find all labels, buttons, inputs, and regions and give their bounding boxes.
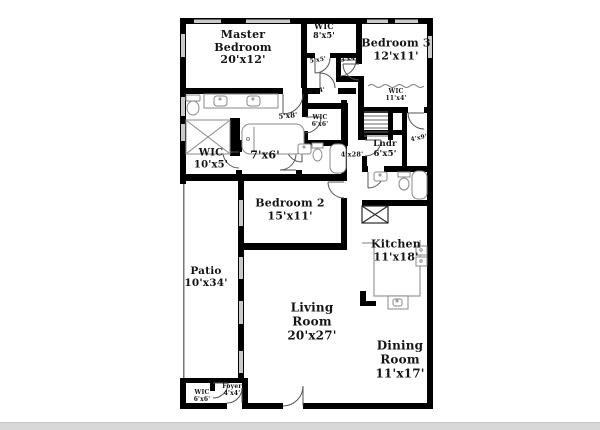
room-name: Master Bedroom bbox=[211, 29, 275, 54]
room-label-living-room: Living Room 20'x27' bbox=[284, 301, 340, 342]
toilet-icon bbox=[312, 143, 323, 161]
room-name: WIC bbox=[188, 148, 234, 160]
stairs-icon bbox=[364, 112, 388, 136]
island-sink-icon bbox=[388, 296, 408, 309]
double-vanity-icon bbox=[204, 94, 278, 108]
room-label-wic-6x6-middle: WIC 6'x6' bbox=[305, 115, 335, 129]
room-dims: 6'x6' bbox=[187, 397, 217, 404]
bathtub-icon bbox=[412, 171, 427, 199]
room-dims: 11'x18' bbox=[366, 251, 426, 264]
room-dims: 20'x12' bbox=[211, 54, 275, 67]
room-dims: 6'x5' bbox=[365, 150, 405, 160]
pantry-icon bbox=[362, 206, 388, 223]
third-bath-fixtures bbox=[374, 171, 427, 199]
room-name: Patio bbox=[176, 265, 236, 277]
sink-icon bbox=[298, 144, 311, 154]
room-dims: 4'x4' bbox=[215, 391, 249, 398]
toilet-icon bbox=[398, 172, 410, 190]
closet-rod-squiggle bbox=[368, 85, 424, 88]
room-dims: 15'x11' bbox=[245, 210, 335, 223]
dim-label-5x8: 5'x8' bbox=[278, 111, 298, 121]
room-dims: 20'x27' bbox=[284, 329, 340, 343]
room-name: Kitchen bbox=[366, 238, 426, 251]
toilet-icon bbox=[186, 95, 200, 115]
room-label-master-bedroom: Master Bedroom 20'x12' bbox=[211, 29, 275, 67]
sink-icon bbox=[374, 172, 387, 181]
room-dims: 10'x5' bbox=[188, 159, 234, 171]
room-dims: 10'x34' bbox=[176, 277, 236, 289]
room-label-bedroom-3: Bedroom 3 12'x11' bbox=[356, 37, 436, 62]
room-label-wic-10x5: WIC 10'x5' bbox=[188, 148, 234, 171]
room-name: Bedroom 3 bbox=[356, 37, 436, 50]
room-label-patio: Patio 10'x34' bbox=[176, 265, 236, 289]
room-name: Dining Room bbox=[372, 339, 428, 367]
room-dims: 11'x4' bbox=[376, 96, 416, 103]
room-label-wic-6x6-foyer: WIC 6'x6' bbox=[187, 390, 217, 404]
room-dims: 6'x6' bbox=[305, 122, 335, 129]
room-label-bedroom-2: Bedroom 2 15'x11' bbox=[245, 197, 335, 222]
room-name: Bedroom 2 bbox=[245, 197, 335, 210]
floorplan-canvas: Master Bedroom 20'x12' WIC 8'x5' Bedroom… bbox=[0, 0, 600, 430]
room-dims: 12'x11' bbox=[356, 50, 436, 63]
dim-label-4x28: 4'x28' bbox=[341, 151, 364, 158]
dim-label-7x6: 7'x6' bbox=[250, 150, 280, 163]
bottom-bar bbox=[0, 422, 600, 430]
room-label-kitchen: Kitchen 11'x18' bbox=[366, 238, 426, 263]
master-bath-fixtures bbox=[186, 94, 304, 154]
room-label-laundry: Lndr 6'x5' bbox=[365, 140, 405, 160]
hall-bath-fixtures bbox=[298, 143, 346, 173]
room-label-wic-8x5: WIC 8'x5' bbox=[304, 22, 344, 40]
room-label-dining-room: Dining Room 11'x17' bbox=[372, 339, 428, 380]
room-dims: 11'x17' bbox=[372, 367, 428, 381]
room-name: Living Room bbox=[284, 301, 340, 329]
room-label-wic-11x4: WIC 11'x4' bbox=[376, 89, 416, 103]
room-label-foyer: Foyer 4'x4' bbox=[215, 384, 249, 398]
room-dims: 8'x5' bbox=[304, 31, 344, 40]
